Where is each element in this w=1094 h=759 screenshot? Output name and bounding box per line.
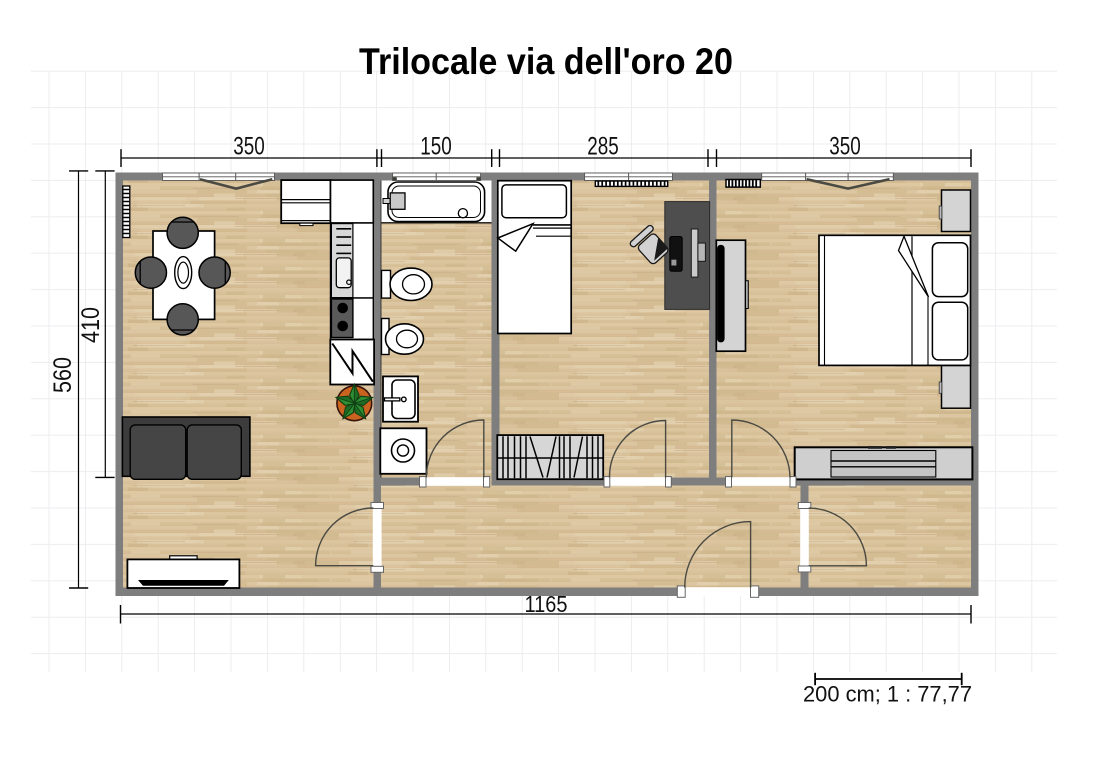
- svg-text:285: 285: [587, 133, 619, 161]
- svg-text:200 cm; 1 : 77,77: 200 cm; 1 : 77,77: [803, 682, 972, 707]
- svg-text:410: 410: [77, 307, 105, 343]
- svg-text:350: 350: [829, 133, 861, 161]
- svg-text:560: 560: [49, 357, 77, 393]
- svg-text:150: 150: [420, 133, 452, 161]
- svg-text:1165: 1165: [525, 591, 568, 617]
- svg-text:350: 350: [233, 133, 265, 161]
- svg-text:Trilocale via dell'oro 20: Trilocale via dell'oro 20: [359, 41, 733, 82]
